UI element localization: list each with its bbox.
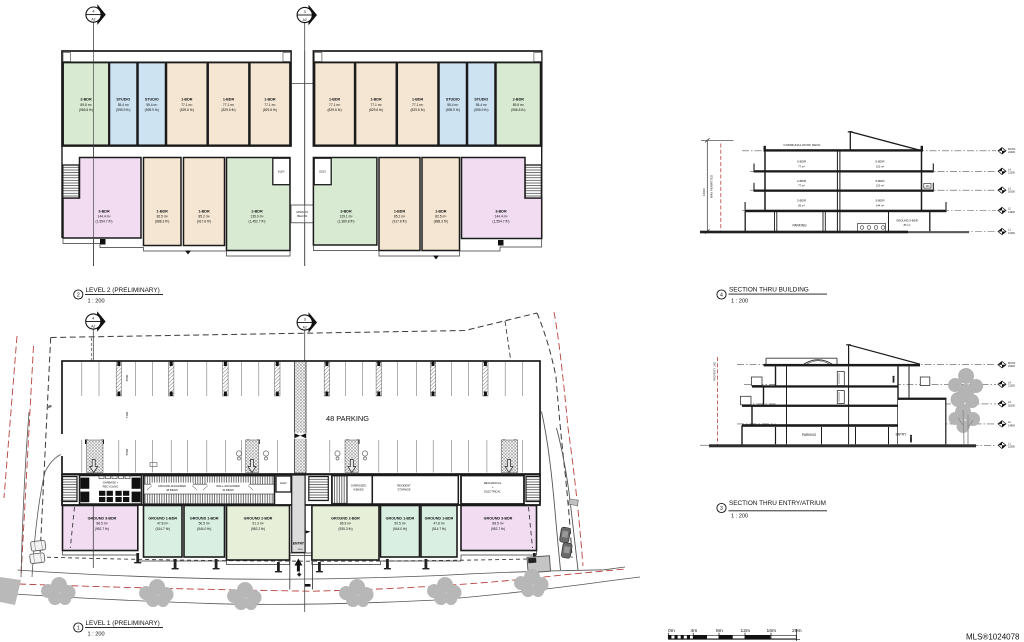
svg-text:89.8 m²: 89.8 m² bbox=[80, 103, 92, 107]
svg-text:STUDIO: STUDIO bbox=[446, 98, 460, 102]
svg-text:4m: 4m bbox=[691, 628, 698, 634]
svg-text:1-BDR: 1-BDR bbox=[181, 98, 193, 102]
svg-text:4: 4 bbox=[720, 293, 723, 299]
svg-text:24400: 24400 bbox=[1008, 365, 1016, 368]
svg-text:129.1 m²: 129.1 m² bbox=[339, 215, 353, 219]
svg-text:2-BDR: 2-BDR bbox=[797, 179, 807, 183]
svg-text:GROUND 1-BDR: GROUND 1-BDR bbox=[148, 517, 177, 521]
svg-text:(952.7 ft²): (952.7 ft²) bbox=[95, 527, 109, 531]
svg-text:BELOW: BELOW bbox=[297, 214, 307, 218]
svg-text:2-BDR: 2-BDR bbox=[797, 199, 807, 203]
svg-text:2-BDR: 2-BDR bbox=[797, 160, 807, 164]
svg-text:77.1 m²: 77.1 m² bbox=[181, 103, 193, 107]
svg-text:5500: 5500 bbox=[125, 374, 129, 381]
svg-text:5-BDR: 5-BDR bbox=[875, 199, 885, 203]
svg-text:ELECTRICAL: ELECTRICAL bbox=[484, 489, 501, 493]
svg-text:144.4 m²: 144.4 m² bbox=[494, 215, 508, 219]
svg-text:1-BDR: 1-BDR bbox=[435, 210, 447, 214]
svg-text:1: 1 bbox=[77, 626, 80, 632]
svg-text:(595.9 ft²): (595.9 ft²) bbox=[446, 108, 460, 112]
svg-text:77 m²: 77 m² bbox=[798, 164, 805, 168]
svg-text:42 BIKES: 42 BIKES bbox=[222, 488, 234, 492]
svg-text:1 : 200: 1 : 200 bbox=[88, 632, 105, 638]
svg-text:STUDIO: STUDIO bbox=[116, 98, 130, 102]
svg-text:STUDIO: STUDIO bbox=[474, 98, 488, 102]
svg-text:82.5 m²: 82.5 m² bbox=[435, 215, 447, 219]
svg-text:5500: 5500 bbox=[125, 448, 129, 455]
svg-text:(982.2 ft²): (982.2 ft²) bbox=[251, 527, 265, 531]
svg-text:2-BDR: 2-BDR bbox=[80, 98, 92, 102]
svg-text:5-BDR: 5-BDR bbox=[875, 160, 885, 164]
svg-text:(829.6 ft²): (829.6 ft²) bbox=[180, 108, 194, 112]
svg-text:PARKING: PARKING bbox=[792, 224, 807, 228]
svg-text:1-BDR: 1-BDR bbox=[223, 98, 235, 102]
svg-text:(595.9 ft²): (595.9 ft²) bbox=[474, 108, 488, 112]
svg-text:120 m²: 120 m² bbox=[876, 184, 884, 188]
svg-text:89.8 m²: 89.8 m² bbox=[513, 103, 525, 107]
svg-text:144 m²: 144 m² bbox=[876, 203, 884, 207]
svg-text:1 : 200: 1 : 200 bbox=[731, 298, 748, 304]
svg-text:144.4 m²: 144.4 m² bbox=[97, 215, 111, 219]
svg-text:86.9 m²: 86.9 m² bbox=[340, 522, 352, 526]
svg-text:16m: 16m bbox=[767, 628, 777, 634]
svg-text:2-BDR: 2-BDR bbox=[513, 98, 525, 102]
svg-text:91.3 m²: 91.3 m² bbox=[252, 522, 264, 526]
svg-text:100: 100 bbox=[925, 185, 930, 188]
svg-text:21200: 21200 bbox=[1008, 172, 1016, 175]
svg-text:88.5 m²: 88.5 m² bbox=[492, 522, 504, 526]
svg-text:2-BDR: 2-BDR bbox=[251, 210, 263, 214]
svg-text:2600: 2600 bbox=[298, 549, 304, 551]
svg-text:50.5 m²: 50.5 m² bbox=[394, 522, 406, 526]
svg-text:77.1 m²: 77.1 m² bbox=[264, 103, 276, 107]
svg-text:18100: 18100 bbox=[1008, 404, 1016, 407]
svg-text:(1,389.8 ft²): (1,389.8 ft²) bbox=[337, 220, 354, 224]
svg-text:120 m²: 120 m² bbox=[876, 164, 884, 168]
svg-text:SECTION THRU ENTRY/ATRIUM: SECTION THRU ENTRY/ATRIUM bbox=[729, 500, 826, 507]
svg-text:5-BDR: 5-BDR bbox=[875, 179, 885, 183]
svg-text:48 PARKING: 48 PARKING bbox=[326, 414, 369, 423]
svg-text:83 m²: 83 m² bbox=[798, 203, 805, 207]
svg-text:ENTRY: ENTRY bbox=[896, 432, 908, 436]
svg-text:1-BDR: 1-BDR bbox=[394, 210, 406, 214]
svg-text:8m: 8m bbox=[716, 628, 723, 634]
svg-text:MAX PERMITTED: MAX PERMITTED bbox=[710, 175, 714, 198]
svg-text:1 : 200: 1 : 200 bbox=[88, 299, 105, 305]
svg-text:GROUND 2-BDR: GROUND 2-BDR bbox=[244, 517, 273, 521]
svg-text:(917.6 ft²): (917.6 ft²) bbox=[197, 220, 211, 224]
svg-text:82.5 m²: 82.5 m² bbox=[157, 215, 169, 219]
svg-text:1-BDR: 1-BDR bbox=[157, 210, 169, 214]
svg-text:(966.8 ft²): (966.8 ft²) bbox=[79, 108, 93, 112]
svg-text:88.5 m²: 88.5 m² bbox=[96, 522, 108, 526]
svg-text:OPEN TO: OPEN TO bbox=[296, 210, 308, 214]
svg-text:18100: 18100 bbox=[1008, 191, 1016, 194]
svg-text:(829.6 ft²): (829.6 ft²) bbox=[369, 108, 383, 112]
svg-text:GROUND 3-BDR: GROUND 3-BDR bbox=[484, 517, 513, 521]
svg-text:ENTRY: ENTRY bbox=[293, 542, 305, 546]
svg-text:GROUND 1-BDR: GROUND 1-BDR bbox=[190, 517, 219, 521]
svg-text:3-BDR: 3-BDR bbox=[340, 210, 352, 214]
svg-text:1-BDR: 1-BDR bbox=[370, 98, 382, 102]
svg-text:3: 3 bbox=[720, 506, 723, 512]
svg-text:(829.6 ft²): (829.6 ft²) bbox=[263, 108, 277, 112]
svg-text:1-BDR: 1-BDR bbox=[329, 98, 341, 102]
svg-text:55.4 m²: 55.4 m² bbox=[447, 103, 459, 107]
svg-text:ELEV: ELEV bbox=[278, 170, 285, 174]
svg-text:MLS®1024078: MLS®1024078 bbox=[966, 633, 1020, 642]
svg-text:135.0 m²: 135.0 m² bbox=[250, 215, 264, 219]
svg-text:1 : 200: 1 : 200 bbox=[731, 514, 748, 520]
svg-text:GROUND 5-BDR: GROUND 5-BDR bbox=[896, 219, 918, 223]
svg-text:55.4 m²: 55.4 m² bbox=[146, 103, 158, 107]
svg-text:14000: 14000 bbox=[702, 188, 706, 196]
svg-text:1-BDR: 1-BDR bbox=[412, 98, 424, 102]
svg-text:12m: 12m bbox=[741, 628, 751, 634]
svg-text:2: 2 bbox=[77, 293, 80, 299]
svg-text:47.8 m²: 47.8 m² bbox=[433, 522, 445, 526]
svg-text:STORAGE: STORAGE bbox=[397, 488, 410, 492]
svg-text:48 BIKES: 48 BIKES bbox=[166, 488, 178, 492]
svg-text:(888.3 ft²): (888.3 ft²) bbox=[434, 220, 448, 224]
svg-text:ELEV: ELEV bbox=[319, 170, 326, 174]
svg-text:(1,554.7 ft²): (1,554.7 ft²) bbox=[95, 220, 112, 224]
svg-text:(966.8 ft²): (966.8 ft²) bbox=[511, 108, 525, 112]
svg-text:0m: 0m bbox=[668, 628, 675, 634]
svg-text:47.8 m²: 47.8 m² bbox=[157, 522, 169, 526]
svg-text:77.1 m²: 77.1 m² bbox=[329, 103, 341, 107]
svg-text:STUDIO: STUDIO bbox=[145, 98, 159, 102]
svg-text:(888.3 ft²): (888.3 ft²) bbox=[155, 220, 169, 224]
svg-text:GROUND 2-BDR: GROUND 2-BDR bbox=[331, 517, 360, 521]
svg-text:3-BDR: 3-BDR bbox=[98, 210, 110, 214]
svg-text:55.4 m²: 55.4 m² bbox=[476, 103, 488, 107]
svg-text:7300: 7300 bbox=[125, 411, 129, 418]
svg-text:1-BDR: 1-BDR bbox=[264, 98, 276, 102]
svg-text:77 m²: 77 m² bbox=[798, 184, 805, 188]
svg-text:11900: 11900 bbox=[1008, 232, 1015, 235]
svg-text:RECYCLING: RECYCLING bbox=[103, 484, 119, 488]
svg-text:ELEV: ELEV bbox=[280, 482, 287, 485]
svg-text:SECTION THRU BUILDING: SECTION THRU BUILDING bbox=[729, 286, 809, 293]
svg-text:86 m²: 86 m² bbox=[904, 223, 911, 227]
svg-text:GROUND 1-BDR: GROUND 1-BDR bbox=[425, 517, 454, 521]
svg-text:A2: A2 bbox=[303, 18, 307, 22]
svg-text:(514.7 ft²): (514.7 ft²) bbox=[432, 527, 446, 531]
svg-text:77.1 m²: 77.1 m² bbox=[370, 103, 382, 107]
svg-text:RESIDENT: RESIDENT bbox=[397, 483, 411, 487]
svg-text:A2: A2 bbox=[91, 18, 95, 22]
svg-text:(1,554.7 ft²): (1,554.7 ft²) bbox=[492, 220, 509, 224]
svg-text:A2: A2 bbox=[91, 325, 95, 329]
svg-text:(829.6 ft²): (829.6 ft²) bbox=[221, 108, 235, 112]
svg-text:14900: 14900 bbox=[1008, 424, 1016, 427]
svg-text:(952.7 ft²): (952.7 ft²) bbox=[491, 527, 505, 531]
svg-text:(917.6 ft²): (917.6 ft²) bbox=[392, 220, 406, 224]
svg-text:(829.6 ft²): (829.6 ft²) bbox=[410, 108, 424, 112]
svg-text:A2: A2 bbox=[303, 326, 307, 330]
svg-text:77.1 m²: 77.1 m² bbox=[223, 103, 235, 107]
svg-text:11900: 11900 bbox=[1008, 446, 1015, 449]
svg-text:85.2 m²: 85.2 m² bbox=[198, 215, 210, 219]
svg-text:GROUND 3-BDR: GROUND 3-BDR bbox=[88, 517, 117, 521]
svg-text:OVERSIZED: OVERSIZED bbox=[351, 483, 367, 487]
svg-text:LEVEL 1 (PRELIMINARY): LEVEL 1 (PRELIMINARY) bbox=[86, 620, 160, 627]
svg-text:3-BDR: 3-BDR bbox=[495, 210, 507, 214]
svg-text:(595.9 ft²): (595.9 ft²) bbox=[116, 108, 130, 112]
svg-text:77.1 m²: 77.1 m² bbox=[412, 103, 424, 107]
svg-text:9 BIKES: 9 BIKES bbox=[353, 488, 363, 492]
svg-text:COMMUNAL ROOF DECK: COMMUNAL ROOF DECK bbox=[783, 143, 821, 147]
svg-text:(935.3 ft²): (935.3 ft²) bbox=[338, 527, 352, 531]
svg-text:1-BDR: 1-BDR bbox=[198, 210, 210, 214]
svg-text:(514.7 ft²): (514.7 ft²) bbox=[156, 527, 170, 531]
svg-text:PROPERTY LINE: PROPERTY LINE bbox=[714, 362, 717, 381]
svg-text:(595.9 ft²): (595.9 ft²) bbox=[145, 108, 159, 112]
svg-text:LEVEL 2 (PRELIMINARY): LEVEL 2 (PRELIMINARY) bbox=[86, 287, 160, 294]
svg-text:20m: 20m bbox=[792, 628, 802, 634]
svg-text:WALL-ANCHORED: WALL-ANCHORED bbox=[216, 484, 240, 488]
svg-text:(544.0 ft²): (544.0 ft²) bbox=[393, 527, 407, 531]
svg-text:GROUND-ANCHORED: GROUND-ANCHORED bbox=[158, 484, 186, 488]
svg-text:55.4 m²: 55.4 m² bbox=[118, 103, 130, 107]
svg-text:(544.0 ft²): (544.0 ft²) bbox=[197, 527, 211, 531]
svg-text:GARBAGE +: GARBAGE + bbox=[103, 480, 119, 484]
svg-text:MECHANICAL: MECHANICAL bbox=[484, 481, 502, 485]
svg-text:14900: 14900 bbox=[1008, 211, 1016, 214]
svg-text:PARKING: PARKING bbox=[802, 433, 817, 437]
svg-text:(1,452.7 ft²): (1,452.7 ft²) bbox=[248, 220, 265, 224]
svg-text:50.5 m²: 50.5 m² bbox=[199, 522, 211, 526]
svg-text:21200: 21200 bbox=[1008, 385, 1016, 388]
svg-text:85.2 m²: 85.2 m² bbox=[394, 215, 406, 219]
svg-text:GROUND 1-BDR: GROUND 1-BDR bbox=[386, 517, 415, 521]
svg-text:24400: 24400 bbox=[1008, 151, 1016, 154]
svg-text:(829.6 ft²): (829.6 ft²) bbox=[327, 108, 341, 112]
